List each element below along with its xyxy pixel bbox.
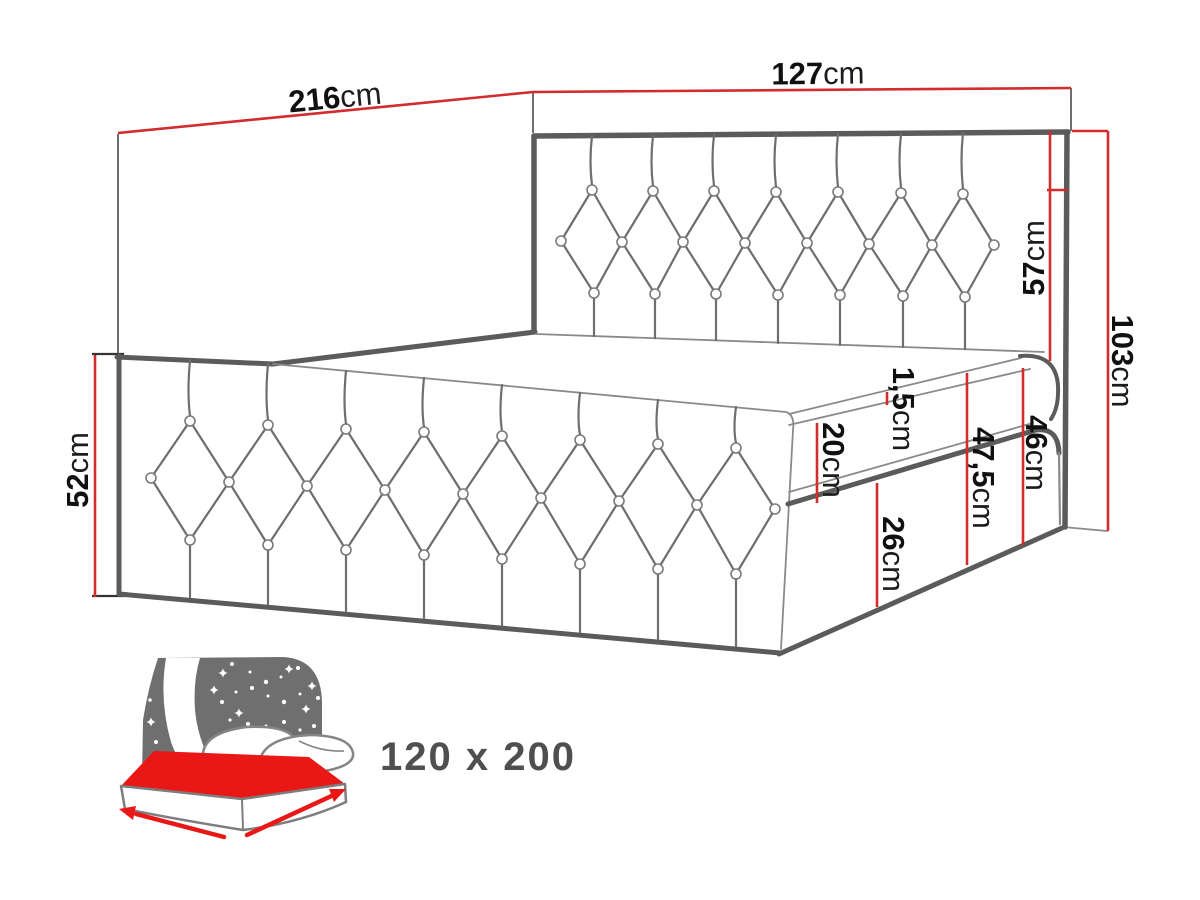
headboard-top-edge	[534, 132, 1068, 136]
side-panel-bottom-edge	[119, 594, 780, 653]
icon-base-seam	[242, 799, 243, 829]
dimension-127-label: 127cm	[771, 56, 864, 92]
size-icon: 120 x 200	[119, 657, 576, 837]
dimension-26-label: 26cm	[876, 516, 911, 592]
dimension-47-5-label: 47,5cm	[966, 427, 1001, 529]
side-panel-top-edge	[273, 364, 793, 649]
base-floor-edge	[779, 528, 1062, 654]
mattress-corner-curve	[1020, 356, 1058, 419]
base-right-edge	[1059, 453, 1060, 524]
dimension-1-5-label: 1,5cm	[886, 367, 921, 451]
dimension-103-label: 103cm	[1105, 314, 1140, 407]
side-panel	[117, 332, 793, 653]
headboard-top-folds	[591, 133, 964, 189]
dimension-216-label: 216cm	[287, 76, 383, 120]
headboard-bottom-line	[536, 334, 1044, 352]
extension-lines	[92, 88, 1107, 596]
floor-reference-line	[1063, 527, 1107, 531]
dimension-57-label: 57cm	[1016, 220, 1051, 296]
size-label: 120 x 200	[380, 735, 576, 779]
dimension-103-line	[1072, 131, 1108, 531]
side-panel-buttons	[146, 416, 780, 579]
bed-dimensions-diagram: 216cm 127cm 57cm 103cm 52cm 1,5cm 20cm 4…	[0, 0, 1200, 900]
headboard-bottom-folds	[594, 298, 965, 349]
dimension-52-label: 52cm	[60, 432, 95, 508]
side-panel-top-and-mattress-edge	[117, 332, 535, 364]
headboard-buttons	[556, 185, 999, 302]
dimension-20-label: 20cm	[816, 422, 851, 498]
dimension-46-label: 46cm	[1019, 415, 1054, 491]
